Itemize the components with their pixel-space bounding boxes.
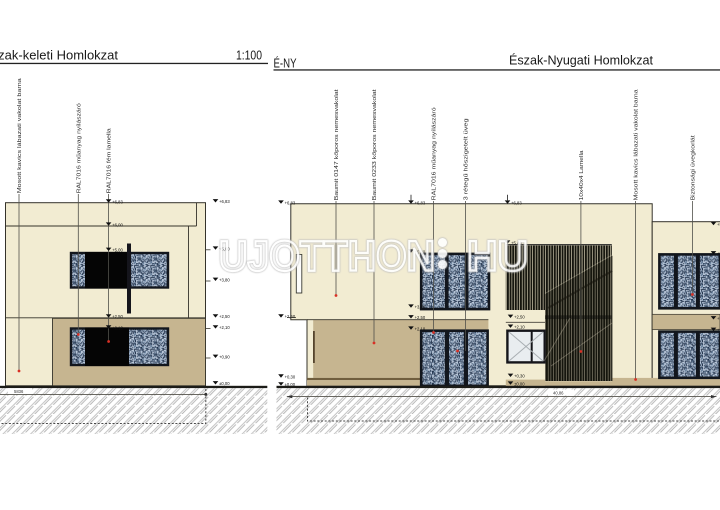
svg-text:40,86: 40,86 bbox=[553, 390, 564, 395]
svg-text:1:100: 1:100 bbox=[236, 48, 262, 63]
svg-text:+5,00: +5,00 bbox=[112, 248, 123, 253]
svg-text:+2,10: +2,10 bbox=[415, 326, 426, 331]
svg-text:Mosott kavics lábazati vakolat: Mosott kavics lábazati vakolat barna bbox=[634, 88, 640, 200]
svg-text:+2,50: +2,50 bbox=[285, 314, 296, 319]
svg-text:+2,50: +2,50 bbox=[219, 314, 230, 319]
svg-text:10x40x4 Lamella: 10x40x4 Lamella bbox=[579, 149, 585, 200]
svg-text:HU: HU bbox=[467, 233, 528, 281]
svg-text:+6,83: +6,83 bbox=[415, 200, 426, 205]
svg-text:RAL7016 műanyag nyílászáró: RAL7016 műanyag nyílászáró bbox=[76, 103, 82, 193]
svg-text:±0,00: ±0,00 bbox=[219, 381, 230, 386]
svg-text:Biztonsági üvegkorlát: Biztonsági üvegkorlát bbox=[690, 135, 696, 201]
svg-text:+6,83: +6,83 bbox=[285, 200, 296, 205]
svg-text:RAL7016 fém lamella: RAL7016 fém lamella bbox=[107, 127, 113, 193]
svg-text:+0,30: +0,30 bbox=[514, 374, 525, 379]
svg-text:+0,30: +0,30 bbox=[285, 374, 296, 379]
svg-text:+6,83: +6,83 bbox=[511, 200, 522, 205]
svg-text:±0,00: ±0,00 bbox=[514, 381, 525, 386]
svg-text:Mosott kavics lábazati vakolat: Mosott kavics lábazati vakolat barna bbox=[17, 77, 23, 193]
svg-text:+6,00: +6,00 bbox=[112, 222, 123, 227]
svg-text:+2,50: +2,50 bbox=[415, 315, 426, 320]
svg-text:+2,10: +2,10 bbox=[112, 325, 123, 330]
svg-text:+2,10: +2,10 bbox=[514, 325, 525, 330]
svg-text:+2,50: +2,50 bbox=[514, 315, 525, 320]
svg-text:Észak-Nyugati Homlokzat: Észak-Nyugati Homlokzat bbox=[509, 53, 653, 68]
svg-text:Baumit 0147 kőporos nemesvakol: Baumit 0147 kőporos nemesvakolat bbox=[334, 89, 340, 201]
svg-text:UJOTTHON: UJOTTHON bbox=[219, 233, 435, 281]
svg-text:É-NY: É-NY bbox=[274, 56, 297, 71]
svg-text:RAL7016 műanyag nyílászáró: RAL7016 műanyag nyílászáró bbox=[432, 107, 438, 200]
svg-text:+2,50: +2,50 bbox=[112, 314, 123, 319]
svg-text:Észak-keleti Homlokzat: Észak-keleti Homlokzat bbox=[0, 48, 118, 63]
svg-text:+0,90: +0,90 bbox=[219, 355, 230, 360]
svg-text:Baumit 0233 kőporos nemesvakol: Baumit 0233 kőporos nemesvakolat bbox=[372, 89, 378, 201]
svg-text:+3,80: +3,80 bbox=[415, 304, 426, 309]
svg-text:+2,10: +2,10 bbox=[219, 325, 230, 330]
svg-text:+6,83: +6,83 bbox=[219, 199, 230, 204]
svg-text:+6,83: +6,83 bbox=[112, 199, 123, 204]
svg-text:3 rétegű hőszigetelt üveg: 3 rétegű hőszigetelt üveg bbox=[463, 118, 469, 200]
svg-text:5836: 5836 bbox=[14, 389, 24, 394]
